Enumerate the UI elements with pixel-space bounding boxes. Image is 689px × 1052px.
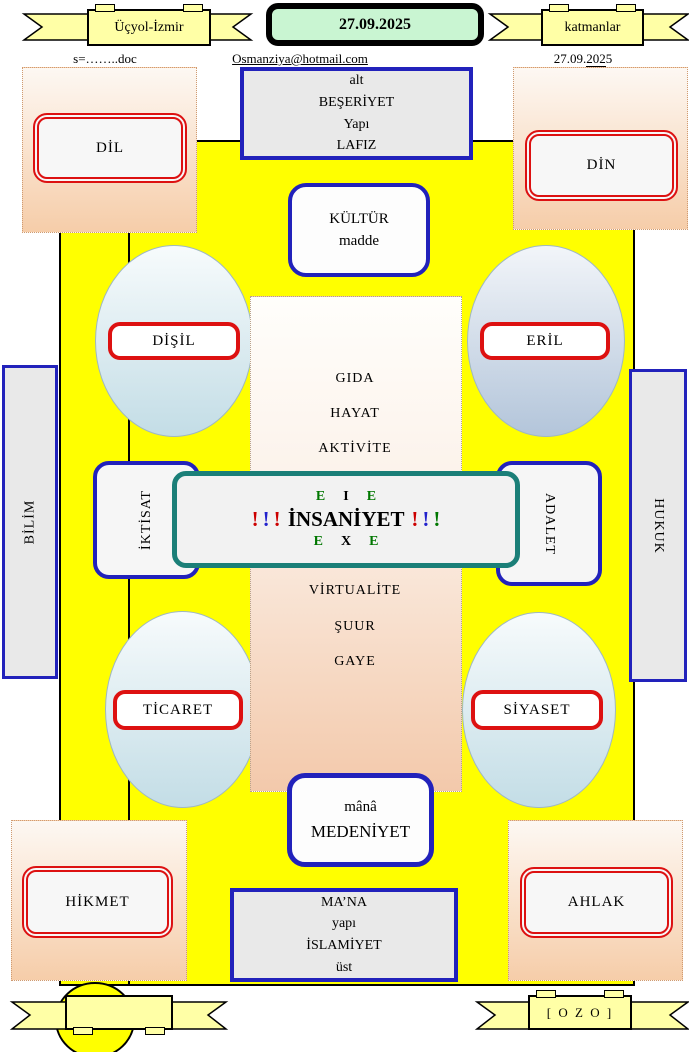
box-insaniyet: EIE !!! İNSANİYET !!! EXE [172, 471, 520, 568]
box-mana-medeniyet: mânâ MEDENİYET [287, 773, 434, 867]
yapi-bottom-label: yapı [332, 913, 356, 935]
label-hikmet: HİKMET [22, 866, 173, 938]
medeniyet-label: MEDENİYET [311, 819, 410, 845]
sidebar-hukuk-label: HUKUK [650, 498, 666, 554]
pill-eril: ERİL [480, 322, 610, 360]
sidebar-hukuk: HUKUK [629, 369, 687, 682]
box-besheriyet: alt BEŞERİYET Yapı LAFIZ [240, 67, 473, 160]
ribbon-panel-empty [65, 995, 173, 1030]
box-mana-islamiyet: MA’NA yapı İSLAMİYET üst [230, 888, 458, 982]
center-word-hayat: HAYAT [250, 406, 460, 422]
date-badge: 27.09.2025 [266, 3, 484, 46]
center-word-gaye: GAYE [250, 654, 460, 670]
yapi-label: Yapı [344, 114, 370, 136]
alt-label: alt [350, 70, 364, 92]
kultur-label: KÜLTÜR [329, 208, 388, 231]
pill-disil: DİŞİL [108, 322, 240, 360]
ribbon-panel-ozo: [ O Z O ] [528, 995, 632, 1030]
sidebar-bilim-label: BİLİM [22, 500, 38, 545]
besheriyet-label: BEŞERİYET [319, 92, 394, 114]
diagram-page: GIDA HAYAT AKTİVİTE VİRTUALİTE ŞUUR GAYE… [0, 0, 689, 1052]
row-eie: EIE [307, 488, 385, 506]
label-din: DİN [525, 130, 678, 201]
ribbon-panel-katmanlar: katmanlar [541, 9, 644, 46]
ribbon-panel-ucyol-izmir: Üçyol-İzmir [87, 9, 211, 46]
sidebox-iktisat-label: İKTİSAT [138, 490, 154, 550]
row-exe: EXE [305, 533, 388, 551]
madde-label: madde [339, 230, 379, 253]
center-word-gida: GIDA [250, 371, 460, 387]
email-link[interactable]: Osmanziya@hotmail.com [205, 51, 395, 67]
label-ahlak: AHLAK [520, 867, 673, 938]
center-word-virtualite: VİRTUALİTE [250, 583, 460, 599]
center-word-suur: ŞUUR [250, 619, 460, 635]
insaniyet-title-row: !!! İNSANİYET !!! [250, 506, 443, 533]
label-dil: DİL [33, 113, 187, 183]
pill-ticaret: TİCARET [113, 690, 243, 730]
mana-small-label: mânâ [344, 796, 376, 819]
pill-siyaset: SİYASET [471, 690, 603, 730]
lafiz-label: LAFIZ [337, 135, 377, 157]
sidebar-bilim: BİLİM [2, 365, 58, 679]
sidebox-adalet-label: ADALET [541, 493, 557, 555]
insaniyet-title: İNSANİYET [288, 507, 404, 531]
ust-label: üst [336, 957, 352, 979]
doc-name-text: s=……..doc [40, 51, 170, 67]
center-word-aktivite: AKTİVİTE [250, 441, 460, 457]
islamiyet-label: İSLAMİYET [306, 935, 381, 957]
date-right-text: 27.09.2025 [518, 51, 648, 67]
mana-label: MA’NA [321, 892, 367, 914]
box-kultur-madde: KÜLTÜR madde [288, 183, 430, 277]
